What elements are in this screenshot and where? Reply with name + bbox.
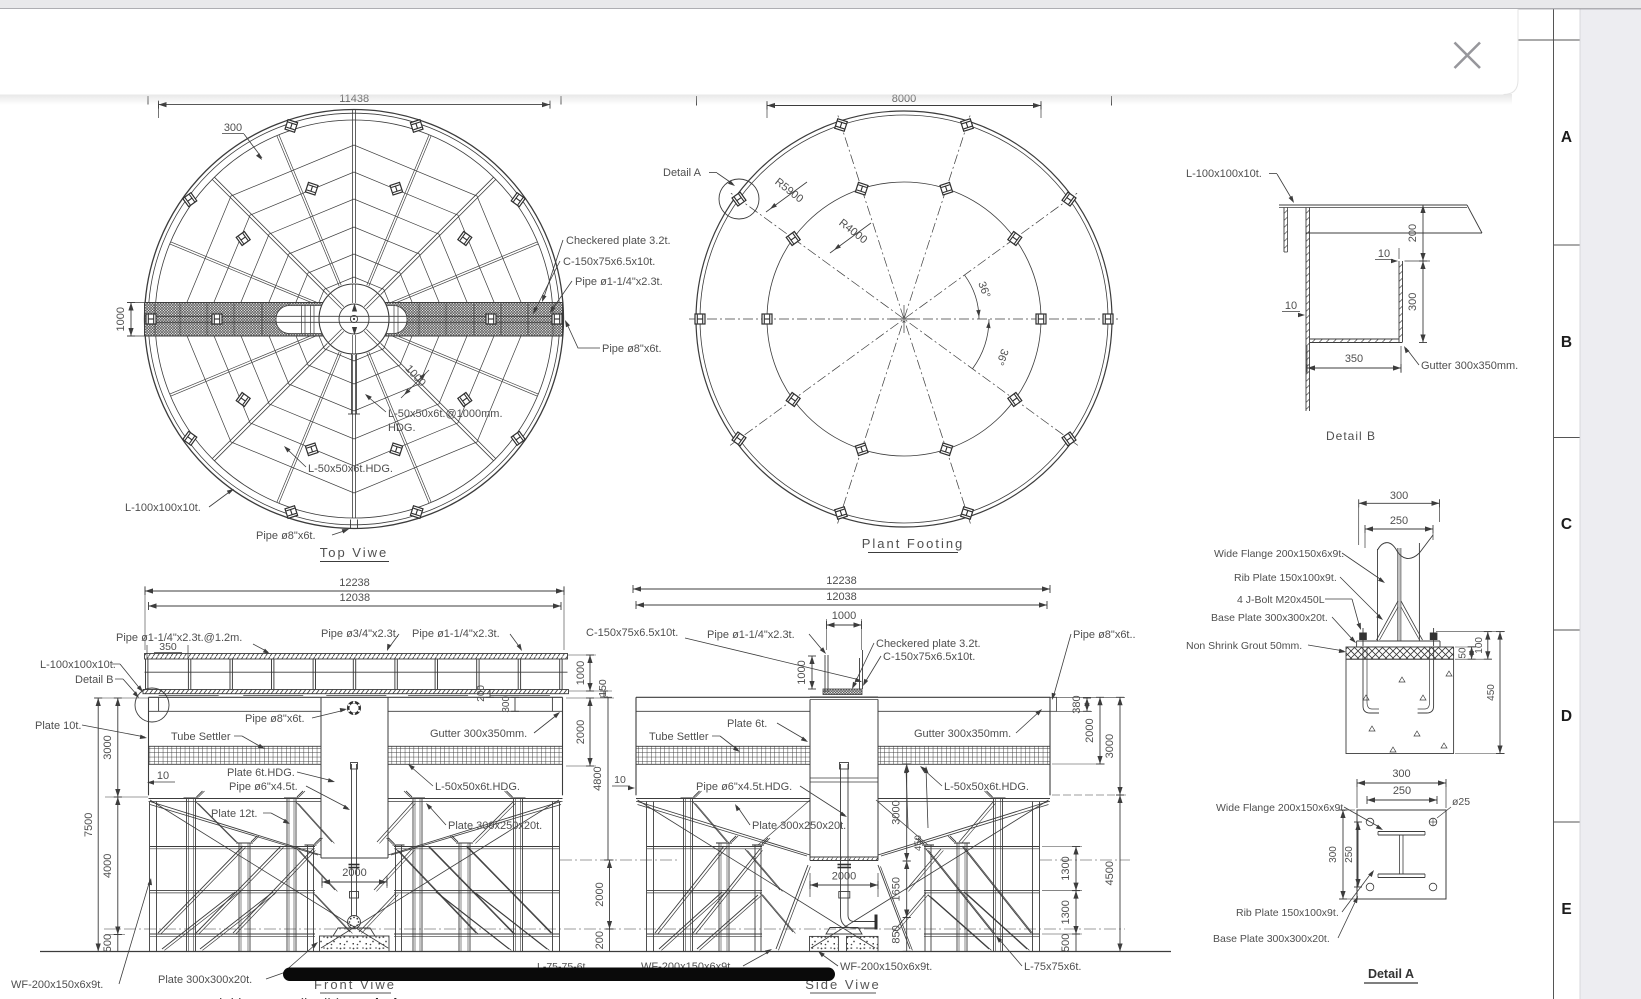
svg-text:Wide Flange 200x150x6x9t.: Wide Flange 200x150x6x9t. (1214, 548, 1344, 560)
svg-text:Gutter 300x350mm.: Gutter 300x350mm. (430, 728, 527, 740)
svg-text:2000: 2000 (342, 867, 366, 879)
svg-text:Top Viwe: Top Viwe (320, 545, 389, 560)
svg-text:Pipe ø8"x6t.: Pipe ø8"x6t. (256, 530, 316, 542)
svg-text:ø25: ø25 (1452, 796, 1470, 808)
svg-text:150: 150 (597, 679, 609, 697)
svg-text:Detail A: Detail A (1368, 967, 1414, 981)
svg-text:Pipe ø1-1/4"x2.3t.@1.2m.: Pipe ø1-1/4"x2.3t.@1.2m. (116, 632, 242, 644)
svg-text:1000: 1000 (796, 660, 808, 684)
svg-text:Pipe ø8"x6t.: Pipe ø8"x6t. (245, 713, 305, 725)
svg-text:300: 300 (1392, 768, 1410, 780)
svg-text:Plate 300x250x20t.: Plate 300x250x20t. (752, 820, 846, 832)
svg-text:450: 450 (1486, 684, 1497, 701)
svg-text:Rib Plate 150x100x9t.: Rib Plate 150x100x9t. (1234, 572, 1337, 584)
svg-text:500: 500 (102, 934, 114, 952)
svg-text:Pipe ø6"x4.5t.: Pipe ø6"x4.5t. (229, 781, 298, 793)
svg-text:Pipe ø3/4"x2.3t.: Pipe ø3/4"x2.3t. (321, 628, 399, 640)
svg-text:Tube Settler: Tube Settler (171, 731, 231, 743)
svg-text:2000: 2000 (594, 882, 606, 906)
svg-text:4000: 4000 (102, 854, 114, 878)
svg-text:Gutter 300x350mm.: Gutter 300x350mm. (1421, 360, 1518, 372)
svg-text:1000: 1000 (832, 610, 856, 622)
svg-text:250: 250 (1390, 515, 1408, 527)
svg-text:250: 250 (1344, 846, 1355, 863)
svg-text:2000: 2000 (832, 871, 856, 883)
svg-text:4800: 4800 (592, 766, 604, 790)
svg-text:4500: 4500 (1104, 861, 1116, 885)
svg-text:Pipe ø1-1/4"x2.3t.: Pipe ø1-1/4"x2.3t. (575, 276, 663, 288)
svg-text:Plate 300x300x20t.: Plate 300x300x20t. (158, 974, 252, 986)
svg-text:Detail B: Detail B (1326, 429, 1376, 443)
svg-text:Pipe ø8"x6t.: Pipe ø8"x6t. (602, 343, 662, 355)
svg-text:1000: 1000 (115, 307, 127, 331)
svg-text:Pipe ø1-1/4"x2.3t.: Pipe ø1-1/4"x2.3t. (707, 629, 795, 641)
svg-text:WF-200x150x6x9t.: WF-200x150x6x9t. (11, 979, 103, 991)
svg-text:Base Plate 300x300x20t.: Base Plate 300x300x20t. (1211, 612, 1328, 624)
svg-text:300: 300 (1407, 293, 1419, 311)
svg-text:B: B (1561, 334, 1572, 351)
svg-text:C: C (1561, 516, 1572, 533)
svg-text:50: 50 (1458, 647, 1469, 659)
svg-text:L-100x100x10t.: L-100x100x10t. (1186, 168, 1262, 180)
svg-text:10: 10 (157, 770, 169, 782)
svg-text:Pipe ø8"x6t..: Pipe ø8"x6t.. (1073, 629, 1136, 641)
svg-text:450: 450 (913, 835, 924, 851)
svg-text:C-150x75x6.5x10t.: C-150x75x6.5x10t. (883, 651, 975, 663)
svg-text:L-50x50x6t.@1000mm.: L-50x50x6t.@1000mm. (388, 408, 503, 420)
svg-text:12038: 12038 (340, 592, 371, 604)
svg-text:250: 250 (1393, 785, 1411, 797)
svg-text:Rib Plate 150x100x9t.: Rib Plate 150x100x9t. (1236, 907, 1339, 919)
svg-text:100: 100 (1474, 637, 1485, 654)
svg-text:L-50x50x6t.HDG.: L-50x50x6t.HDG. (308, 463, 393, 475)
svg-text:12238: 12238 (339, 577, 370, 589)
svg-text:Non Shrink Grout 50mm.: Non Shrink Grout 50mm. (1186, 640, 1302, 652)
svg-text:200: 200 (476, 685, 487, 702)
svg-text:3000: 3000 (1104, 734, 1116, 758)
svg-text:Plate 12t.: Plate 12t. (211, 808, 257, 820)
svg-text:Gutter 300x350mm.: Gutter 300x350mm. (914, 728, 1011, 740)
svg-text:Detail A: Detail A (663, 167, 702, 179)
svg-text:300: 300 (1390, 490, 1408, 502)
svg-text:1300: 1300 (1060, 900, 1072, 924)
svg-text:4 J-Bolt M20x450L: 4 J-Bolt M20x450L (1237, 594, 1325, 606)
svg-text:Plate 10t.: Plate 10t. (35, 720, 81, 732)
svg-text:E: E (1561, 901, 1571, 918)
svg-text:Checkered plate 3.2t.: Checkered plate 3.2t. (876, 638, 981, 650)
svg-text:200: 200 (1407, 224, 1419, 242)
svg-text:Checkered plate 3.2t.: Checkered plate 3.2t. (566, 235, 671, 247)
svg-text:Plate 6t.: Plate 6t. (727, 718, 767, 730)
svg-text:L-50x50x6t.HDG.: L-50x50x6t.HDG. (944, 781, 1029, 793)
svg-text:Detail B: Detail B (75, 674, 114, 686)
svg-text:300: 300 (1328, 846, 1339, 863)
svg-text:Plant Footing: Plant Footing (862, 536, 965, 551)
svg-text:Pipe ø1-1/4"x2.3t.: Pipe ø1-1/4"x2.3t. (412, 628, 500, 640)
svg-text:12238: 12238 (826, 575, 857, 587)
svg-text:Plate 300x250x20t.: Plate 300x250x20t. (448, 820, 542, 832)
svg-text:350: 350 (1345, 353, 1363, 365)
svg-text:WF-200x150x6x9t.: WF-200x150x6x9t. (840, 961, 932, 973)
svg-text:L-100x100x10t.: L-100x100x10t. (40, 659, 116, 671)
svg-text:1000: 1000 (575, 661, 587, 685)
svg-text:200: 200 (594, 931, 606, 949)
svg-text:7500: 7500 (83, 813, 95, 837)
svg-text:Wide Flange 200x150x6x9t.: Wide Flange 200x150x6x9t. (1216, 802, 1346, 814)
svg-text:2000: 2000 (575, 720, 587, 744)
svg-text:L-100x100x10t.: L-100x100x10t. (125, 502, 201, 514)
svg-text:C-150x75x6.5x10t.: C-150x75x6.5x10t. (563, 256, 655, 268)
svg-text:10: 10 (614, 774, 626, 786)
svg-text:2000: 2000 (1084, 718, 1096, 742)
svg-text:A: A (1561, 129, 1572, 146)
svg-text:Pipe ø6"x4.5t.HDG.: Pipe ø6"x4.5t.HDG. (696, 781, 792, 793)
svg-text:L-50x50x6t.HDG.: L-50x50x6t.HDG. (435, 781, 520, 793)
svg-text:Plate 6t.HDG.: Plate 6t.HDG. (227, 767, 295, 779)
svg-text:3000: 3000 (891, 800, 903, 824)
svg-text:850: 850 (891, 925, 903, 943)
svg-text:300: 300 (224, 122, 242, 134)
svg-text:HDG.: HDG. (388, 422, 416, 434)
svg-text:Base Plate 300x300x20t.: Base Plate 300x300x20t. (1213, 933, 1330, 945)
svg-text:L-75x75x6t.: L-75x75x6t. (1024, 961, 1081, 973)
svg-text:3000: 3000 (102, 735, 114, 759)
svg-text:300: 300 (501, 696, 512, 713)
svg-text:C-150x75x6.5x10t.: C-150x75x6.5x10t. (586, 627, 678, 639)
svg-text:10: 10 (1378, 248, 1390, 260)
svg-text:500: 500 (1060, 934, 1072, 952)
svg-text:D: D (1561, 708, 1572, 725)
svg-text:12038: 12038 (826, 591, 857, 603)
svg-text:1650: 1650 (891, 877, 903, 901)
svg-text:Tube Settler: Tube Settler (649, 731, 709, 743)
svg-text:10: 10 (1285, 300, 1297, 312)
